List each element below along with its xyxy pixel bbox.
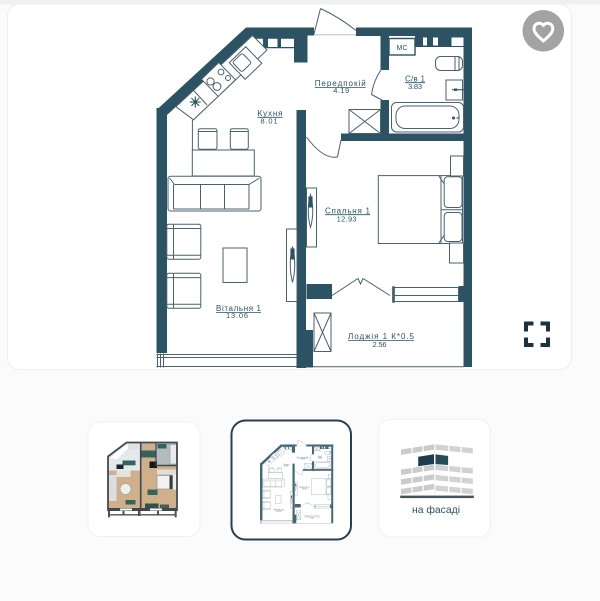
svg-text:на фасаді: на фасаді (412, 504, 460, 516)
